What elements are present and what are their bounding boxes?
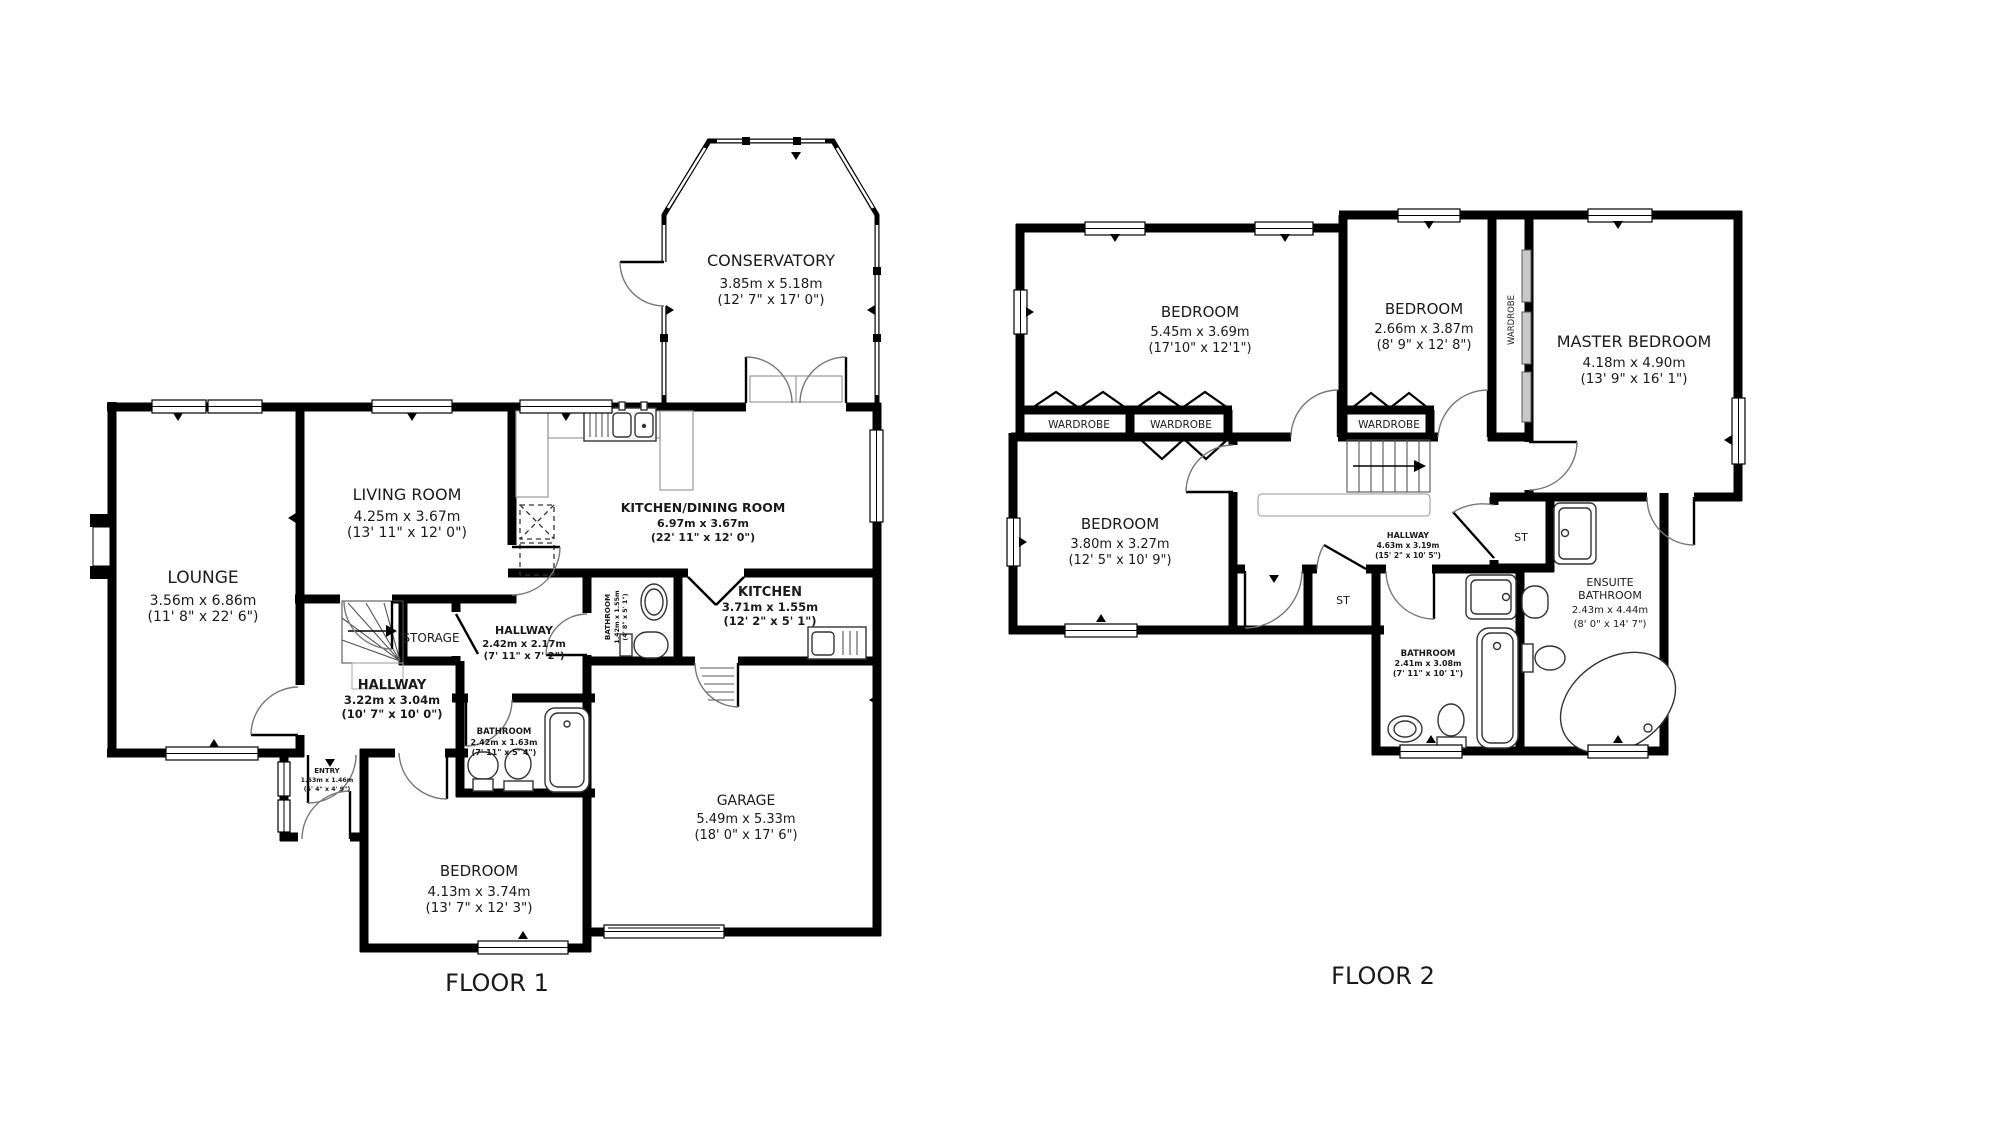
bedroom-left-metric: 5.45m x 3.69m — [1150, 325, 1249, 340]
bathroom1-imperial: (7' 11" x 5' 4") — [472, 748, 537, 757]
bedroom-middle-metric: 2.66m x 3.87m — [1374, 322, 1473, 337]
kitchen-imperial: (12' 2" x 5' 1") — [724, 614, 817, 628]
bedroom-left-imperial: (17'10" x 12'1") — [1148, 341, 1251, 356]
wc-name: BATHROOM — [603, 594, 612, 640]
living-room-name: LIVING ROOM — [353, 485, 462, 504]
wardrobe-label-3: WARDROBE — [1358, 419, 1420, 431]
hallway2-metric: 4.63m x 3.19m — [1377, 541, 1440, 550]
master-bedroom-metric: 4.18m x 4.90m — [1583, 355, 1686, 371]
wc-metric: 1.42m x 1.55m — [613, 590, 621, 644]
entry-name: ENTRY — [314, 767, 340, 775]
wardrobe-label-1: WARDROBE — [1048, 419, 1110, 431]
bathroom2-metric: 2.41m x 3.08m — [1395, 659, 1462, 668]
kitchen-name: KITCHEN — [738, 585, 802, 600]
hallway2-name: HALLWAY — [1387, 531, 1429, 540]
ensuite-metric: 2.43m x 4.44m — [1572, 605, 1648, 616]
wardrobe-vertical-label: WARDROBE — [1507, 295, 1517, 345]
kitchen-dining-name: KITCHEN/DINING ROOM — [621, 500, 786, 515]
kitchen-sink — [808, 627, 866, 659]
hallway-upper-imperial: (7' 11" x 7' 2") — [484, 651, 565, 662]
hallway-lower-imperial: (10' 7" x 10' 0") — [342, 707, 443, 721]
hallway-lower-metric: 3.22m x 3.04m — [344, 693, 440, 707]
bedroom-f1-name: BEDROOM — [440, 862, 518, 880]
garage-metric: 5.49m x 5.33m — [696, 812, 795, 827]
entry-imperial: (5' 4" x 4' 9") — [304, 786, 351, 793]
hallway2-imperial: (15' 2" x 10' 5") — [1375, 551, 1441, 560]
bathroom1-metric: 2.42m x 1.63m — [471, 738, 538, 747]
bathroom2-imperial: (7' 11" x 10' 1") — [1393, 669, 1463, 678]
master-bedroom-name: MASTER BEDROOM — [1557, 332, 1712, 351]
ensuite-name2: BATHROOM — [1578, 589, 1642, 602]
entry-metric: 1.63m x 1.46m — [301, 777, 354, 784]
storage-name: STORAGE — [402, 631, 459, 645]
wc-label: BATHROOM 1.42m x 1.55m (4' 8" x 5' 1") — [603, 590, 629, 644]
lounge-name: LOUNGE — [167, 568, 238, 588]
kitchen-dining-metric: 6.97m x 3.67m — [657, 517, 749, 530]
living-room-metric: 4.25m x 3.67m — [354, 509, 461, 525]
bedroom-middle-imperial: (8' 9" x 12' 8") — [1377, 338, 1472, 353]
hallway-upper-metric: 2.42m x 2.17m — [482, 639, 566, 650]
lounge-imperial: (11' 8" x 22' 6") — [147, 609, 258, 625]
storage-lower-label: ST — [1336, 594, 1350, 607]
bedroom-f1-imperial: (13' 7" x 12' 3") — [425, 900, 532, 916]
wardrobe-label-4: WARDROBE — [1507, 295, 1517, 345]
hallway-lower-name: HALLWAY — [358, 678, 427, 693]
floor2-title: FLOOR 2 — [1331, 962, 1435, 990]
lounge-metric: 3.56m x 6.86m — [150, 593, 257, 609]
kitchen-dining-imperial: (22' 11" x 12' 0") — [651, 531, 755, 544]
bathroom1-name: BATHROOM — [477, 727, 532, 737]
hallway-upper-name: HALLWAY — [495, 624, 554, 637]
floor1-title: FLOOR 1 — [445, 969, 549, 997]
conservatory-name: CONSERVATORY — [707, 251, 835, 270]
chimney — [90, 514, 112, 579]
bedroom-lower-name: BEDROOM — [1081, 515, 1159, 533]
bedroom-left-name: BEDROOM — [1161, 303, 1239, 321]
kitchen-metric: 3.71m x 1.55m — [722, 600, 818, 614]
floorplan-svg: CONSERVATORY 3.85m x 5.18m (12' 7" x 17'… — [0, 0, 2000, 1125]
storage-upper-label: ST — [1514, 531, 1528, 544]
conservatory-imperial: (12' 7" x 17' 0") — [717, 292, 824, 308]
bathroom2-name: BATHROOM — [1401, 649, 1456, 659]
bedroom-lower-metric: 3.80m x 3.27m — [1070, 537, 1169, 552]
living-room-imperial: (13' 11" x 12' 0") — [347, 525, 467, 541]
wardrobe-label-2: WARDROBE — [1150, 419, 1212, 431]
bedroom-middle-name: BEDROOM — [1385, 300, 1463, 318]
bedroom-f1-metric: 4.13m x 3.74m — [428, 884, 531, 900]
wc-imperial: (4' 8" x 5' 1") — [621, 593, 629, 640]
ensuite-name1: ENSUITE — [1586, 576, 1633, 589]
conservatory-metric: 3.85m x 5.18m — [720, 276, 823, 292]
conservatory-door-opening — [660, 262, 669, 306]
wardrobe-sliding-panels — [1522, 250, 1531, 422]
garage-imperial: (18' 0" x 17' 6") — [694, 828, 797, 843]
bedroom-lower-imperial: (12' 5" x 10' 9") — [1068, 553, 1171, 568]
master-bedroom-imperial: (13' 9" x 16' 1") — [1580, 371, 1687, 387]
ensuite-imperial: (8' 0" x 14' 7") — [1574, 619, 1647, 630]
garage-name: GARAGE — [717, 793, 776, 809]
